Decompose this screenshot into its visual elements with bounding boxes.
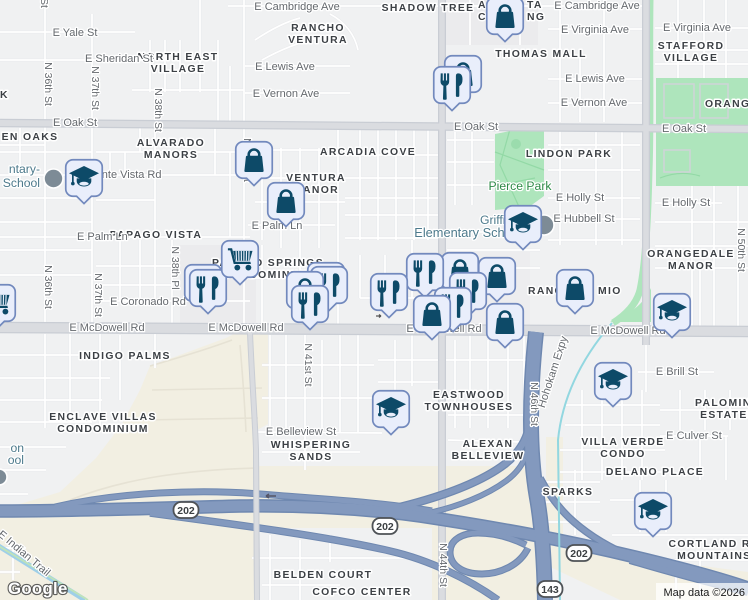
svg-text:LINDON PARK: LINDON PARK (526, 149, 612, 160)
svg-text:E McDowell Rd: E McDowell Rd (208, 322, 283, 334)
svg-text:N 36th St: N 36th St (42, 265, 54, 309)
svg-text:ESTATES: ESTATES (700, 410, 748, 421)
svg-text:N 37th St: N 37th St (89, 66, 101, 110)
svg-text:E Oak St: E Oak St (53, 117, 97, 129)
svg-text:143: 143 (541, 584, 559, 596)
svg-text:EASTWOOD: EASTWOOD (433, 390, 505, 401)
svg-text:E Holly St: E Holly St (662, 197, 710, 209)
svg-text:E Cambridge Ave: E Cambridge Ave (554, 0, 639, 12)
svg-text:VILLAGE: VILLAGE (151, 64, 205, 75)
svg-text:A: A (478, 0, 487, 11)
svg-text:WHISPERING: WHISPERING (271, 440, 351, 451)
svg-text:ORANGE: ORANGE (705, 99, 748, 110)
svg-text:PALOMINO: PALOMINO (695, 398, 748, 409)
svg-text:E Virginia Ave: E Virginia Ave (561, 24, 629, 36)
svg-text:DELANO PLACE: DELANO PLACE (606, 467, 704, 478)
svg-text:BELDEN COURT: BELDEN COURT (274, 570, 373, 581)
svg-text:E Palm Ln: E Palm Ln (77, 231, 128, 243)
svg-text:SANDS: SANDS (289, 452, 332, 463)
svg-text:N 38th St: N 38th St (152, 88, 164, 132)
svg-text:Pierce Park: Pierce Park (489, 179, 553, 193)
svg-text:ool: ool (8, 453, 24, 467)
svg-text:Map data ©2026: Map data ©2026 (664, 587, 746, 599)
svg-text:VENTURA: VENTURA (288, 35, 348, 46)
svg-text:E Holly St: E Holly St (556, 192, 604, 204)
svg-text:E Oak St: E Oak St (454, 121, 498, 133)
svg-text:THOMAS MALL: THOMAS MALL (495, 49, 587, 60)
svg-text:E Vernon Ave: E Vernon Ave (561, 97, 627, 109)
svg-text:TA: TA (527, 0, 543, 11)
svg-text:ALVARADO: ALVARADO (137, 138, 205, 149)
svg-text:ALEXAN: ALEXAN (463, 439, 514, 450)
svg-text:N 37th St: N 37th St (92, 273, 104, 317)
svg-text:N 36th St: N 36th St (42, 62, 54, 106)
svg-text:CONDO: CONDO (600, 449, 645, 460)
svg-text:E Vernon Ave: E Vernon Ave (253, 88, 319, 100)
svg-text:VILLA VERDE: VILLA VERDE (581, 437, 664, 448)
svg-text:E Belleview St: E Belleview St (266, 426, 336, 438)
svg-text:Google: Google (8, 579, 68, 598)
svg-text:202: 202 (570, 548, 588, 560)
svg-text:E Virginia Ave: E Virginia Ave (663, 22, 731, 34)
svg-text:CONDOMINIUM: CONDOMINIUM (57, 424, 149, 435)
svg-text:NG: NG (527, 12, 545, 23)
svg-text:E McDowell Rd: E McDowell Rd (69, 322, 144, 334)
svg-text:STAFFORD: STAFFORD (658, 41, 725, 52)
svg-text:MANORS: MANORS (144, 150, 198, 161)
svg-text:K: K (0, 90, 9, 101)
svg-text:N 44th St: N 44th St (437, 543, 449, 587)
svg-text:COFCO CENTER: COFCO CENTER (312, 587, 411, 598)
svg-text:C: C (478, 12, 487, 23)
svg-text:E Lewis Ave: E Lewis Ave (565, 73, 625, 85)
svg-text:ntary-: ntary- (9, 162, 40, 176)
svg-text:E Sheridan St: E Sheridan St (85, 53, 153, 65)
svg-text:202: 202 (177, 505, 195, 517)
svg-text:SPARKS: SPARKS (543, 487, 594, 498)
svg-text:E Hubbell St: E Hubbell St (553, 213, 614, 225)
svg-text:CORTLAND RIDGE: CORTLAND RIDGE (669, 539, 748, 550)
svg-text:202: 202 (376, 521, 394, 533)
svg-text:SHADOW TREE: SHADOW TREE (382, 3, 475, 14)
svg-text:EN OAKS: EN OAKS (2, 132, 59, 143)
svg-text:MOUNTAINSIDE: MOUNTAINSIDE (677, 551, 748, 562)
svg-text:ORANGEDALE: ORANGEDALE (647, 249, 734, 260)
svg-text:TOWNHOUSES: TOWNHOUSES (425, 402, 514, 413)
svg-text:E Culver St: E Culver St (666, 430, 722, 442)
svg-text:MIO: MIO (598, 286, 622, 297)
svg-text:N 41st St: N 41st St (302, 343, 314, 386)
svg-text:MANOR: MANOR (668, 261, 714, 272)
svg-text:N 38th Pl: N 38th Pl (169, 246, 181, 289)
svg-text:E Lewis Ave: E Lewis Ave (255, 61, 315, 73)
svg-text:ENCLAVE VILLAS: ENCLAVE VILLAS (49, 412, 157, 423)
svg-text:E Brill St: E Brill St (656, 366, 698, 378)
svg-text:ARCADIA COVE: ARCADIA COVE (320, 147, 416, 158)
svg-text:E Palm Ln: E Palm Ln (252, 220, 303, 232)
svg-text:N 36th St: N 36th St (38, 0, 50, 8)
svg-text:E Yale St: E Yale St (53, 27, 98, 39)
svg-text:E Oak St: E Oak St (662, 123, 706, 135)
svg-text:VILLAGE: VILLAGE (664, 53, 718, 64)
svg-text:INDIGO PALMS: INDIGO PALMS (79, 351, 171, 362)
svg-text:BELLEVIEW: BELLEVIEW (452, 451, 525, 462)
svg-text:E Coronado Rd: E Coronado Rd (110, 296, 186, 308)
svg-text:RANCHO: RANCHO (291, 23, 345, 34)
svg-text:E Cambridge Ave: E Cambridge Ave (254, 1, 339, 13)
svg-text:N 50th St: N 50th St (735, 228, 747, 272)
svg-text:School: School (3, 176, 40, 190)
